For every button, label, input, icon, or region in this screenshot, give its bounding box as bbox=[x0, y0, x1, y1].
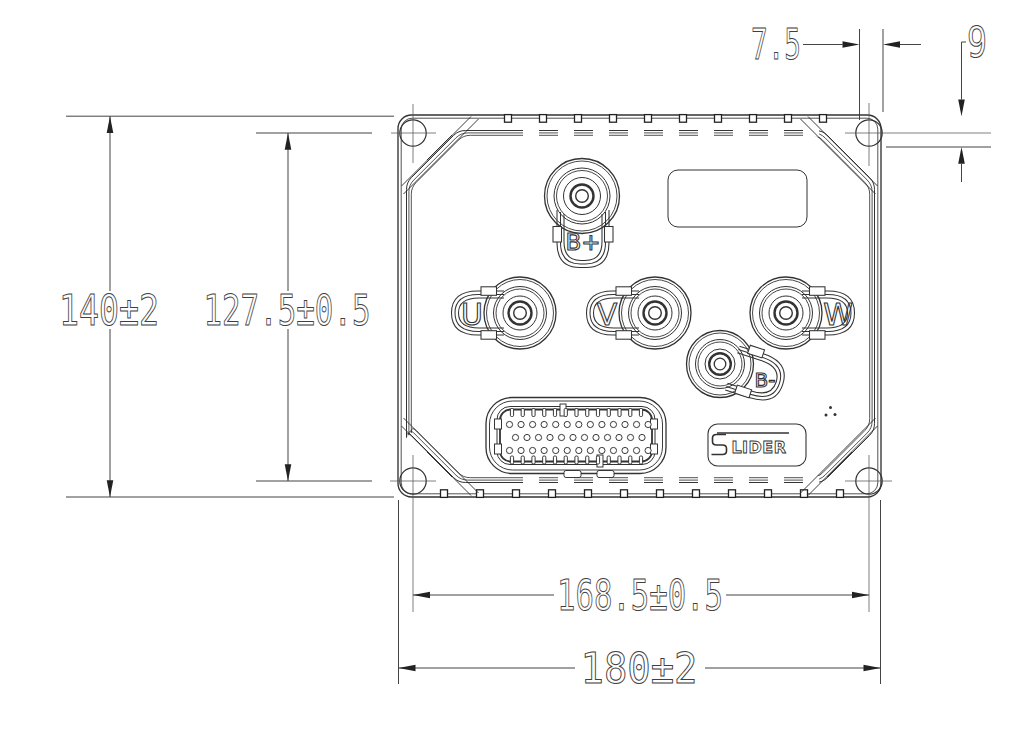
terminal-label-w: W bbox=[823, 297, 853, 332]
dim-text-edge-offset-v: 9 bbox=[967, 18, 987, 67]
dim-text-overall-width: 180±2 bbox=[581, 644, 698, 693]
dim-text-hole-spacing-horizontal: 168.5±0.5 bbox=[557, 571, 723, 620]
dim-hole-spacing-horizontal: 168.5±0.5 bbox=[413, 571, 869, 620]
signal-connector bbox=[486, 398, 666, 478]
terminal-label-b-minus: B- bbox=[755, 368, 776, 392]
logo-s-glyph bbox=[712, 435, 727, 455]
orientation-dots bbox=[825, 406, 837, 417]
terminal-label-u: U bbox=[461, 297, 483, 332]
dim-text-hole-spacing-vertical: 127.5±0.5 bbox=[204, 286, 371, 335]
dim-text-overall-height: 140±2 bbox=[59, 286, 159, 335]
terminal-b-minus: B- bbox=[725, 342, 791, 406]
terminal-b-plus: B+ bbox=[553, 210, 613, 268]
terminal-label-v: V bbox=[597, 297, 618, 332]
mounting-holes bbox=[390, 103, 991, 612]
dim-edge-offset-9: 9 bbox=[886, 18, 991, 183]
logo-text: LIDER bbox=[731, 438, 786, 457]
motor-controller-dimension-drawing: B+ U V W bbox=[0, 0, 1024, 754]
dim-edge-offset-7-5: 7.5 bbox=[751, 20, 921, 121]
dim-text-edge-offset-h: 7.5 bbox=[751, 20, 801, 69]
dim-hole-spacing-vertical: 127.5±0.5 bbox=[198, 133, 376, 481]
label-plate bbox=[668, 170, 807, 227]
connector-pins bbox=[506, 409, 651, 465]
hole-centerlines bbox=[390, 103, 991, 612]
terminal-label-b-plus: B+ bbox=[565, 229, 600, 255]
brand-badge: LIDER bbox=[708, 424, 806, 466]
